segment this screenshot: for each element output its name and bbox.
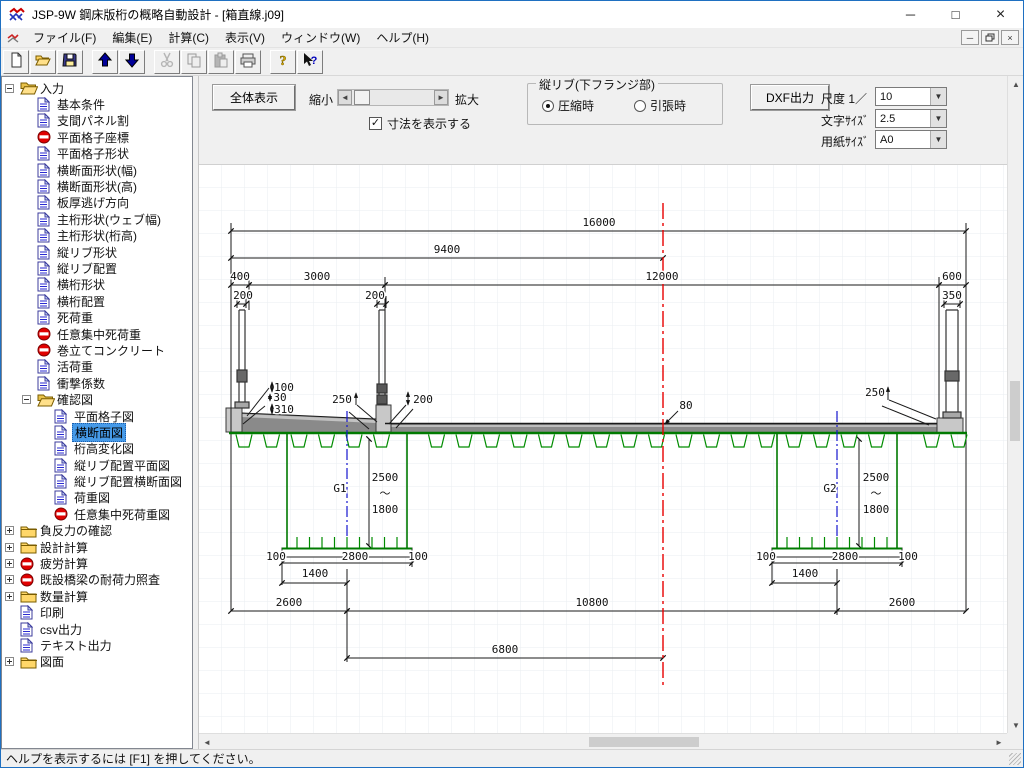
tree-item-平面格子形状[interactable]: 平面格子形状 — [2, 146, 192, 162]
app-icon — [8, 7, 26, 23]
app-window: JSP-9W 鋼床版桁の概略自動設計 - [箱直線.j09] ─ □ × ファイ… — [0, 0, 1024, 768]
document-icon — [54, 425, 72, 440]
minimize-icon[interactable]: ─ — [888, 1, 933, 28]
tree-item-label: 衝撃係数 — [55, 375, 107, 392]
tree-item-設計計算[interactable]: 設計計算 — [2, 539, 192, 555]
tree-item-csv出力[interactable]: csv出力 — [2, 621, 192, 637]
tree-item-負反力の確認[interactable]: 負反力の確認 — [2, 523, 192, 539]
show-dimensions-checkbox[interactable]: ✓ — [369, 117, 382, 130]
tree-item-平面格子図[interactable]: 平面格子図 — [2, 408, 192, 424]
document-icon — [37, 277, 55, 292]
fit-view-button[interactable]: 全体表示 — [213, 85, 295, 110]
tree-item-板厚逃げ方向[interactable]: 板厚逃げ方向 — [2, 195, 192, 211]
drawing-panel: 全体表示 縮小 ◄ ► 拡大 ✓ 寸法を表示する 縦リブ(下フランジ部) — [199, 76, 1023, 749]
dim-label: 〜 — [380, 487, 391, 500]
tree-item-label: 図面 — [38, 653, 66, 670]
tree-item-図面[interactable]: 図面 — [2, 654, 192, 670]
close-icon[interactable]: × — [978, 1, 1023, 28]
menubar: ファイル(F) 編集(E) 計算(C) 表示(V) ウィンドウ(W) ヘルプ(H… — [1, 28, 1023, 48]
tree-item-label: 入力 — [38, 80, 66, 97]
move-down-icon — [124, 52, 140, 71]
paste-button — [208, 50, 234, 74]
dim-label: 1400 — [792, 567, 819, 580]
slider-right-arrow-icon[interactable]: ► — [434, 90, 448, 105]
dim-label: 2500 — [863, 471, 890, 484]
rib-group: 縦リブ(下フランジ部) 圧縮時 引張時 — [527, 83, 723, 125]
print-button[interactable] — [235, 50, 261, 74]
menu-file[interactable]: ファイル(F) — [25, 27, 104, 48]
tree-item-桁高変化図[interactable]: 桁高変化図 — [2, 441, 192, 457]
document-icon — [54, 474, 72, 489]
maximize-icon[interactable]: □ — [933, 1, 978, 28]
copy-button — [181, 50, 207, 74]
dim-label: 1800 — [863, 503, 890, 516]
dim-label: 200 — [413, 393, 433, 406]
radio-compression[interactable]: 圧縮時 — [542, 97, 594, 114]
tree-item-label: 負反力の確認 — [38, 522, 114, 539]
fontsize-value: 2.5 — [876, 113, 930, 125]
scale-combo[interactable]: 10 ▼ — [875, 87, 947, 106]
radio-compression-label: 圧縮時 — [558, 97, 594, 114]
tree-item-label: 死荷重 — [55, 309, 95, 326]
dim-label: 2500 — [372, 471, 399, 484]
tree-item-主桁形状(桁高)[interactable]: 主桁形状(桁高) — [2, 228, 192, 244]
folder-icon — [37, 393, 55, 407]
document-icon — [37, 97, 55, 112]
resize-grip-icon[interactable] — [1009, 753, 1021, 765]
tree-item-label: 板厚逃げ方向 — [55, 194, 131, 211]
radio-tension-label: 引張時 — [650, 97, 686, 114]
tree-item-label: 荷重図 — [72, 489, 112, 506]
scrollbar-corner — [1007, 733, 1023, 749]
dim-label: 200 — [365, 289, 385, 302]
tree-item-疲労計算[interactable]: 疲労計算 — [2, 555, 192, 571]
tree-item-主桁形状(ウェブ幅)[interactable]: 主桁形状(ウェブ幅) — [2, 211, 192, 227]
dim-label: 12000 — [645, 270, 678, 283]
tree-item-label: 桁高変化図 — [72, 440, 136, 457]
paper-combo[interactable]: A0 ▼ — [875, 130, 947, 149]
scroll-up-icon[interactable]: ▲ — [1008, 76, 1024, 92]
dim-label: 9400 — [434, 243, 461, 256]
tree-item-label: 縦リブ配置平面図 — [72, 457, 172, 474]
folder-icon — [20, 655, 38, 669]
tree-item-活荷重[interactable]: 活荷重 — [2, 359, 192, 375]
tree-item-label: 基本条件 — [55, 96, 107, 113]
tree-item-印刷[interactable]: 印刷 — [2, 605, 192, 621]
new-button[interactable] — [3, 50, 29, 74]
dim-label: 10800 — [575, 596, 608, 609]
dxf-export-button[interactable]: DXF出力 — [751, 85, 829, 110]
tree-item-label: 縦リブ形状 — [55, 244, 119, 261]
drawing-controls: 全体表示 縮小 ◄ ► 拡大 ✓ 寸法を表示する 縦リブ(下フランジ部) — [199, 76, 1007, 164]
document-icon — [37, 146, 55, 161]
open-icon — [35, 52, 51, 71]
open-button[interactable] — [30, 50, 56, 74]
no-entry-icon — [54, 507, 72, 521]
dim-label: 1800 — [372, 503, 399, 516]
document-icon — [54, 490, 72, 505]
dim-label: 250 — [332, 393, 352, 406]
document-icon — [20, 638, 38, 653]
scroll-down-icon[interactable]: ▼ — [1008, 717, 1024, 733]
tree-item-基本条件[interactable]: 基本条件 — [2, 96, 192, 112]
move-up-icon — [97, 52, 113, 71]
document-icon — [37, 113, 55, 128]
scroll-left-icon[interactable]: ◄ — [199, 734, 215, 750]
tree-item-確認図[interactable]: 確認図 — [2, 391, 192, 407]
tree-item-縦リブ配置横断面図[interactable]: 縦リブ配置横断面図 — [2, 473, 192, 489]
help-icon: ? — [275, 52, 291, 71]
horizontal-scrollbar[interactable]: ◄ ► — [199, 733, 1007, 749]
scale-label: 尺度 1／ — [821, 90, 867, 107]
no-entry-icon — [37, 327, 55, 341]
document-icon — [37, 195, 55, 210]
tree-item-入力[interactable]: 入力 — [2, 80, 192, 96]
tree-item-label: 任意集中死荷重 — [55, 326, 143, 343]
zoom-in-label: 拡大 — [455, 91, 479, 108]
tree-item-label: 数量計算 — [38, 588, 90, 605]
document-icon — [37, 163, 55, 178]
dim-label: 250 — [865, 386, 885, 399]
document-icon — [54, 441, 72, 456]
new-icon — [8, 52, 24, 71]
folder-icon — [20, 589, 38, 603]
document-icon — [37, 245, 55, 260]
tree-item-数量計算[interactable]: 数量計算 — [2, 588, 192, 604]
dim-label: 2600 — [276, 596, 303, 609]
tree-item-横断面形状(高)[interactable]: 横断面形状(高) — [2, 178, 192, 194]
document-icon — [20, 622, 38, 637]
tree-item-平面格子座標[interactable]: 平面格子座標 — [2, 129, 192, 145]
document-icon — [37, 310, 55, 325]
tree-item-横断面形状(幅)[interactable]: 横断面形状(幅) — [2, 162, 192, 178]
cross-section-drawing: 1600094004003000120006002002003501003031… — [199, 165, 1009, 735]
tree-item-label: 印刷 — [38, 604, 66, 621]
dim-label: 6800 — [492, 643, 519, 656]
vertical-scroll-thumb[interactable] — [1010, 381, 1020, 441]
folder-icon — [20, 81, 38, 95]
folder-icon — [20, 540, 38, 554]
tree-item-縦リブ配置[interactable]: 縦リブ配置 — [2, 260, 192, 276]
menu-window[interactable]: ウィンドウ(W) — [273, 27, 368, 48]
tree-item-支間パネル割[interactable]: 支間パネル割 — [2, 113, 192, 129]
tree-item-label: 縦リブ配置 — [55, 260, 119, 277]
context-help-icon: ? — [302, 52, 318, 71]
tree-item-衝撃係数[interactable]: 衝撃係数 — [2, 375, 192, 391]
slider-thumb[interactable] — [354, 90, 370, 105]
cut-icon — [159, 52, 175, 71]
toolbar: ?? — [1, 48, 1023, 76]
zoom-out-label: 縮小 — [309, 91, 333, 108]
move-up-button[interactable] — [92, 50, 118, 74]
context-help-button[interactable]: ? — [297, 50, 323, 74]
no-entry-icon — [20, 573, 38, 587]
dim-label: 100 — [266, 550, 286, 563]
menu-view[interactable]: 表示(V) — [217, 27, 273, 48]
dim-label: 80 — [679, 399, 692, 412]
dim-label: 100 — [898, 550, 918, 563]
document-icon — [54, 409, 72, 424]
help-button[interactable]: ? — [270, 50, 296, 74]
tree-item-label: 疲労計算 — [38, 555, 90, 572]
dim-label: 200 — [233, 289, 253, 302]
move-down-button[interactable] — [119, 50, 145, 74]
dim-label: 100 — [408, 550, 428, 563]
tree-item-巻立てコンクリート[interactable]: 巻立てコンクリート — [2, 342, 192, 358]
dim-label: 1400 — [302, 567, 329, 580]
rib-group-title: 縦リブ(下フランジ部) — [536, 76, 658, 93]
tree-item-既設橋梁の耐荷力照査[interactable]: 既設橋梁の耐荷力照査 — [2, 572, 192, 588]
dim-label: 3000 — [304, 270, 331, 283]
print-icon — [240, 52, 256, 71]
dim-label: 310 — [274, 403, 294, 416]
tree-item-label: 平面格子形状 — [55, 145, 131, 162]
menu-edit[interactable]: 編集(E) — [104, 27, 160, 48]
menu-help[interactable]: ヘルプ(H) — [368, 27, 437, 48]
save-button[interactable] — [57, 50, 83, 74]
dim-label: 2800 — [342, 550, 369, 563]
dim-label: 〜 — [871, 487, 882, 500]
slider-left-arrow-icon[interactable]: ◄ — [338, 90, 352, 105]
radio-tension[interactable]: 引張時 — [634, 97, 686, 114]
no-entry-icon — [20, 557, 38, 571]
tree-item-label: 既設橋梁の耐荷力照査 — [38, 571, 162, 588]
tree-item-label: 活荷重 — [55, 358, 95, 375]
document-icon — [5, 31, 21, 45]
navigation-tree: 入力基本条件支間パネル割平面格子座標平面格子形状横断面形状(幅)横断面形状(高)… — [1, 76, 193, 749]
document-icon — [54, 458, 72, 473]
cut-button — [154, 50, 180, 74]
radio-dot-icon — [634, 100, 646, 112]
window-title: JSP-9W 鋼床版桁の概略自動設計 - [箱直線.j09] — [32, 6, 284, 23]
document-icon — [37, 228, 55, 243]
svg-text:?: ? — [280, 54, 287, 68]
dim-label: 2800 — [832, 550, 859, 563]
fontsize-combo[interactable]: 2.5 ▼ — [875, 109, 947, 128]
document-icon — [37, 261, 55, 276]
tree-item-label: 支間パネル割 — [55, 112, 131, 129]
chevron-down-icon[interactable]: ▼ — [930, 110, 946, 127]
tree-item-label: 設計計算 — [38, 539, 90, 556]
tree-item-荷重図[interactable]: 荷重図 — [2, 490, 192, 506]
zoom-slider[interactable]: ◄ ► — [337, 89, 449, 106]
tree-item-label: 横桁配置 — [55, 293, 107, 310]
tree-item-横桁形状[interactable]: 横桁形状 — [2, 277, 192, 293]
dim-label: 100 — [756, 550, 776, 563]
save-icon — [62, 52, 78, 71]
chevron-down-icon[interactable]: ▼ — [930, 131, 946, 148]
show-dimensions-label: 寸法を表示する — [387, 115, 471, 132]
document-icon — [20, 605, 38, 620]
dim-label: G2 — [823, 482, 836, 495]
tree-item-label: 横断面形状(幅) — [55, 162, 139, 179]
paper-label: 用紙ｻｲｽﾞ — [821, 133, 869, 150]
tree-item-label: 主桁形状(桁高) — [55, 227, 139, 244]
tree-item-label: 横断面形状(高) — [55, 178, 139, 195]
tree-item-横断面図[interactable]: 横断面図 — [2, 424, 192, 440]
dim-label: 350 — [942, 289, 962, 302]
document-icon — [37, 376, 55, 391]
tree-item-任意集中死荷重[interactable]: 任意集中死荷重 — [2, 326, 192, 342]
dim-label: 2600 — [889, 596, 916, 609]
tree-item-label: 確認図 — [55, 391, 95, 408]
document-icon — [37, 294, 55, 309]
tree-item-label: テキスト出力 — [38, 637, 114, 654]
chevron-down-icon[interactable]: ▼ — [930, 88, 946, 105]
mdi-window-buttons: ─ × — [961, 30, 1023, 45]
dim-label: G1 — [333, 482, 346, 495]
tree-item-label: 平面格子座標 — [55, 129, 131, 146]
tree-item-label: 巻立てコンクリート — [55, 342, 167, 359]
horizontal-scroll-thumb[interactable] — [589, 737, 699, 747]
drawing-canvas[interactable]: 1600094004003000120006002002003501003031… — [199, 164, 1007, 733]
dim-label: 400 — [230, 270, 250, 283]
tree-item-テキスト出力[interactable]: テキスト出力 — [2, 637, 192, 653]
statusbar: ヘルプを表示するには [F1] を押してください。 — [1, 749, 1023, 767]
tree-item-label: 横桁形状 — [55, 276, 107, 293]
dim-label: 600 — [942, 270, 962, 283]
paper-value: A0 — [876, 134, 930, 146]
document-icon — [37, 179, 55, 194]
svg-text:?: ? — [311, 55, 318, 67]
tree-item-縦リブ配置平面図[interactable]: 縦リブ配置平面図 — [2, 457, 192, 473]
mdi-close-icon[interactable]: × — [1001, 30, 1019, 45]
vertical-scrollbar[interactable]: ▲ ▼ — [1007, 76, 1023, 733]
no-entry-icon — [37, 130, 55, 144]
scroll-right-icon[interactable]: ► — [991, 734, 1007, 750]
tree-item-label: csv出力 — [38, 621, 84, 638]
menu-calc[interactable]: 計算(C) — [160, 27, 217, 48]
paste-icon — [213, 52, 229, 71]
folder-icon — [20, 524, 38, 538]
radio-dot-icon — [542, 100, 554, 112]
no-entry-icon — [37, 343, 55, 357]
dim-label: 16000 — [582, 216, 615, 229]
tree-item-横桁配置[interactable]: 横桁配置 — [2, 293, 192, 309]
tree-item-label: 任意集中死荷重図 — [72, 506, 172, 523]
tree-item-label: 主桁形状(ウェブ幅) — [55, 211, 163, 228]
document-icon — [37, 359, 55, 374]
tree-item-任意集中死荷重図[interactable]: 任意集中死荷重図 — [2, 506, 192, 522]
mdi-restore-icon[interactable] — [981, 30, 999, 45]
titlebar: JSP-9W 鋼床版桁の概略自動設計 - [箱直線.j09] ─ □ × — [1, 1, 1023, 28]
tree-item-label: 横断面図 — [72, 423, 126, 442]
tree-item-死荷重[interactable]: 死荷重 — [2, 309, 192, 325]
document-icon — [37, 212, 55, 227]
copy-icon — [186, 52, 202, 71]
fontsize-label: 文字ｻｲｽﾞ — [821, 112, 869, 129]
scale-value: 10 — [876, 91, 930, 103]
tree-item-縦リブ形状[interactable]: 縦リブ形状 — [2, 244, 192, 260]
mdi-minimize-icon[interactable]: ─ — [961, 30, 979, 45]
tree-item-label: 縦リブ配置横断面図 — [72, 473, 184, 490]
status-text: ヘルプを表示するには [F1] を押してください。 — [6, 750, 261, 767]
